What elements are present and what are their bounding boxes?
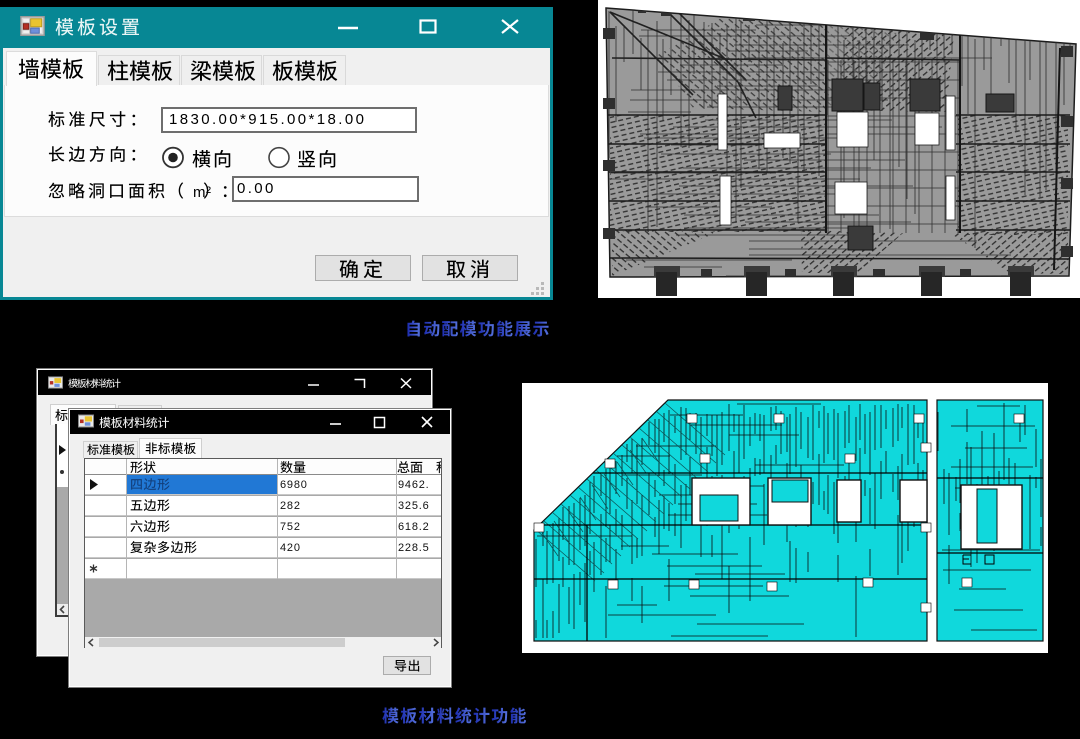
svg-text:m²: m² [193,184,212,201]
